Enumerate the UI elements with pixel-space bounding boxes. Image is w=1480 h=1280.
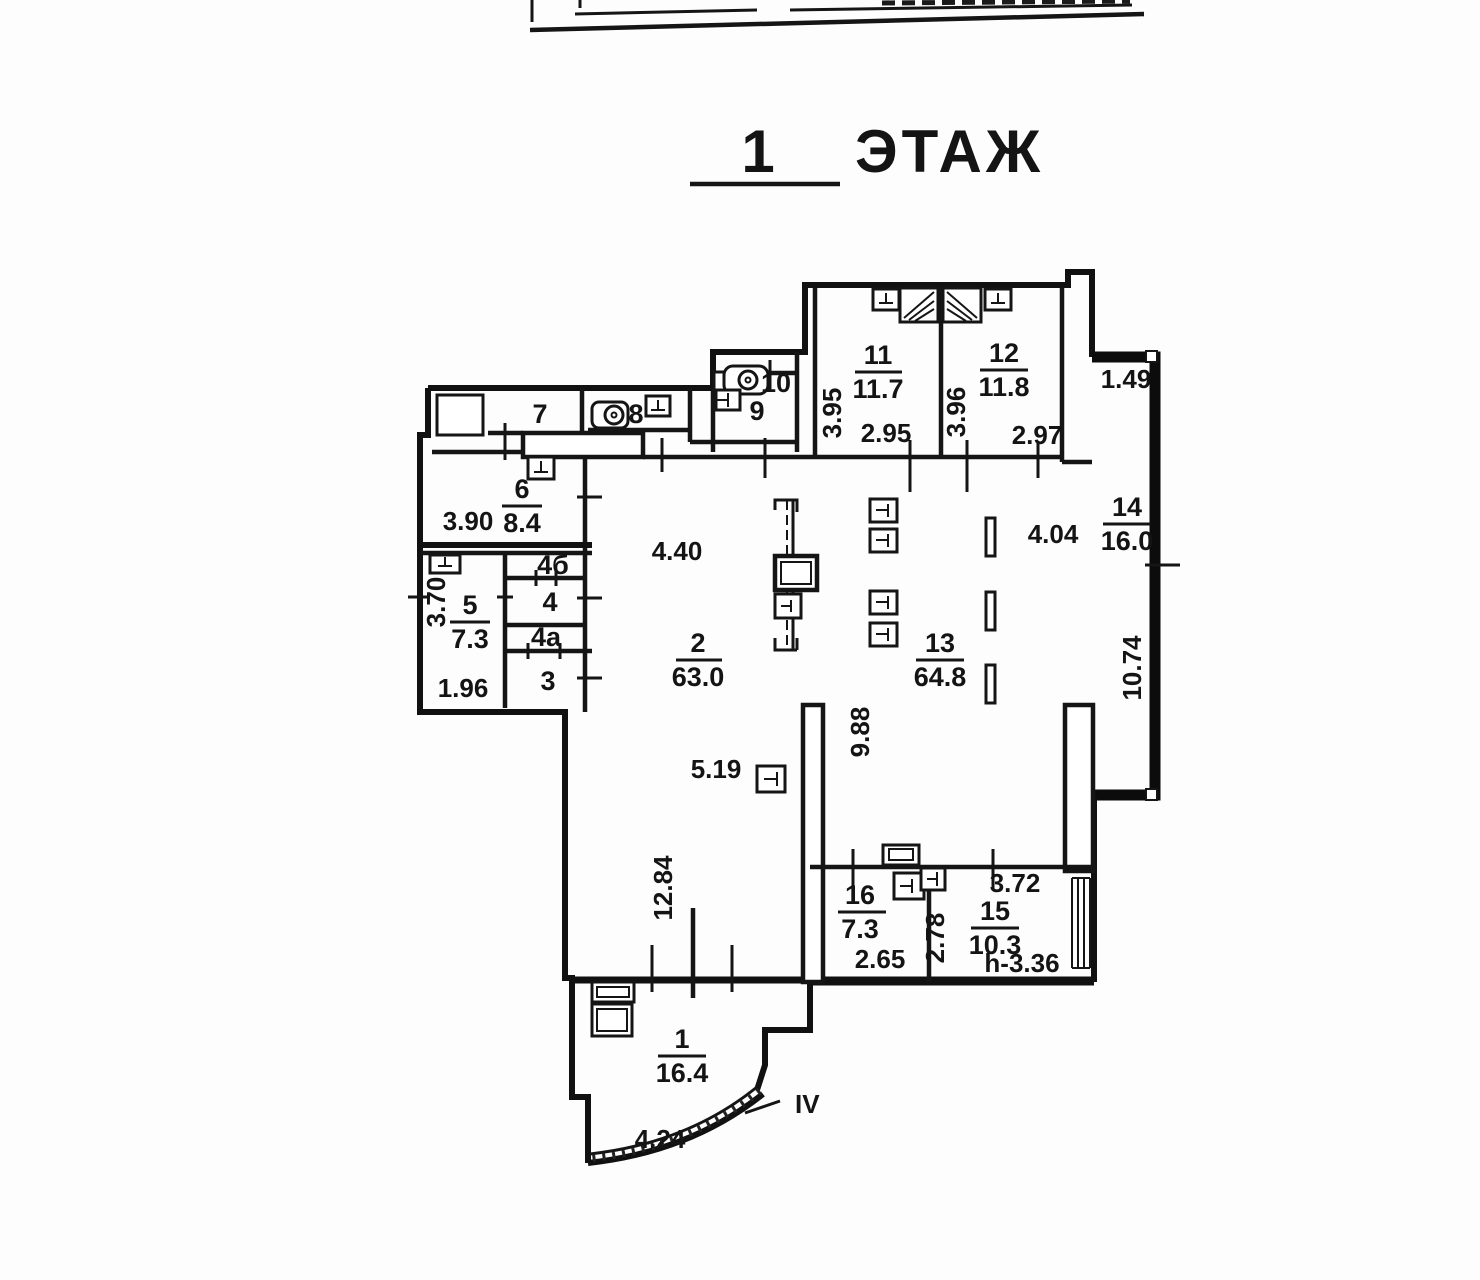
hall-elements	[652, 500, 817, 998]
room1-number: 1	[674, 1024, 689, 1054]
window-band-caps	[1072, 878, 1090, 968]
room16-area: 7.3	[841, 914, 879, 944]
wall-joint-dot-top	[1146, 351, 1157, 362]
dim-hall13-depth: 9.88	[845, 707, 875, 758]
dim-vestibule-arc: 4.24	[635, 1124, 686, 1154]
dim-loggia-depth: 10.74	[1117, 635, 1147, 701]
floor-label: ЭТАЖ	[855, 118, 1044, 185]
room12-right-pier	[1062, 288, 1092, 462]
wall-pier	[437, 395, 483, 435]
door-ticks	[577, 598, 602, 678]
dim-room5-width: 1.96	[438, 673, 489, 703]
dim-hall-upper: 4.40	[652, 536, 703, 566]
dim-hall-depth: 12.84	[648, 855, 678, 921]
room4-number: 4	[542, 587, 557, 617]
dim-loggia-top: 1.49	[1101, 364, 1152, 394]
room13-number: 13	[925, 628, 955, 658]
column	[986, 592, 995, 630]
window-band	[1072, 878, 1090, 968]
column	[986, 518, 995, 556]
cabinet-box	[592, 982, 634, 1002]
duct-shaft-walls	[690, 388, 713, 452]
room13-area: 64.8	[914, 662, 967, 692]
column	[986, 665, 995, 703]
pier-13-15	[1065, 705, 1093, 871]
room6-number: 6	[514, 474, 529, 504]
room12-area: 11.8	[978, 372, 1029, 402]
dimension-labels: 3.90 3.70 1.96 4.40 5.19 12.84 4.24 3.95…	[421, 364, 1151, 1154]
floor-plan-page: 1 ЭТАЖ	[0, 0, 1480, 1280]
room10-number: 10	[761, 368, 791, 398]
dim-hall-lower: 5.19	[691, 754, 742, 784]
room3-number: 3	[540, 666, 555, 696]
header-underline-right	[790, 5, 1132, 10]
room2-number: 2	[690, 628, 705, 658]
room6-area: 8.4	[503, 508, 541, 538]
room4a-number: 4а	[531, 622, 562, 652]
room11-number: 11	[864, 340, 893, 370]
floor-number: 1	[741, 118, 778, 185]
entrance-label: IV	[795, 1089, 820, 1119]
header-bottom-border	[530, 14, 1144, 30]
room11-area: 11.7	[852, 374, 903, 404]
wall-joint-dot-bottom	[1146, 789, 1157, 800]
header-clipped-text-marks	[882, 1, 1130, 3]
dim-room15-top: 3.72	[990, 868, 1041, 898]
room15-number: 15	[980, 896, 1010, 926]
dim-room11-depth: 3.95	[817, 388, 847, 439]
loggia-exterior-wall	[1092, 357, 1155, 795]
outer-wall-left-lower	[572, 975, 588, 1163]
floor-plan-drawing: 1 ЭТАЖ	[0, 0, 1480, 1280]
dim-room6-width: 3.90	[443, 506, 494, 536]
room4b-number: 4б	[537, 550, 569, 580]
header-underline-left	[575, 10, 757, 14]
spine-wall	[803, 705, 823, 982]
dim-room15-height-note: h-3.36	[984, 948, 1059, 978]
hall-lintel	[523, 433, 643, 457]
room14-number: 14	[1112, 492, 1142, 522]
dim-room12-depth: 3.96	[941, 387, 971, 438]
room1-area: 16.4	[656, 1058, 709, 1088]
room8-number: 8	[628, 399, 643, 429]
room5-number: 5	[462, 590, 477, 620]
dim-room11-width: 2.95	[861, 418, 912, 448]
room7-number: 7	[532, 399, 547, 429]
document-header-remnant	[530, 0, 1144, 30]
dim-room15-left: 2.78	[920, 913, 950, 964]
floor-title: 1 ЭТАЖ	[690, 118, 1044, 185]
dim-room12-width: 2.97	[1012, 420, 1063, 450]
room5-area: 7.3	[451, 624, 489, 654]
room16-number: 16	[845, 880, 875, 910]
dim-room16-width: 2.65	[855, 944, 906, 974]
outer-walls	[420, 272, 1157, 1163]
vestibule-right-wall	[757, 982, 810, 1090]
room9-number: 9	[749, 396, 764, 426]
room2-area: 63.0	[672, 662, 725, 692]
dim-hall13-right: 4.04	[1028, 519, 1079, 549]
dim-room5-depth: 3.70	[421, 577, 451, 628]
room14-area: 16.0	[1101, 526, 1154, 556]
room12-number: 12	[989, 338, 1019, 368]
